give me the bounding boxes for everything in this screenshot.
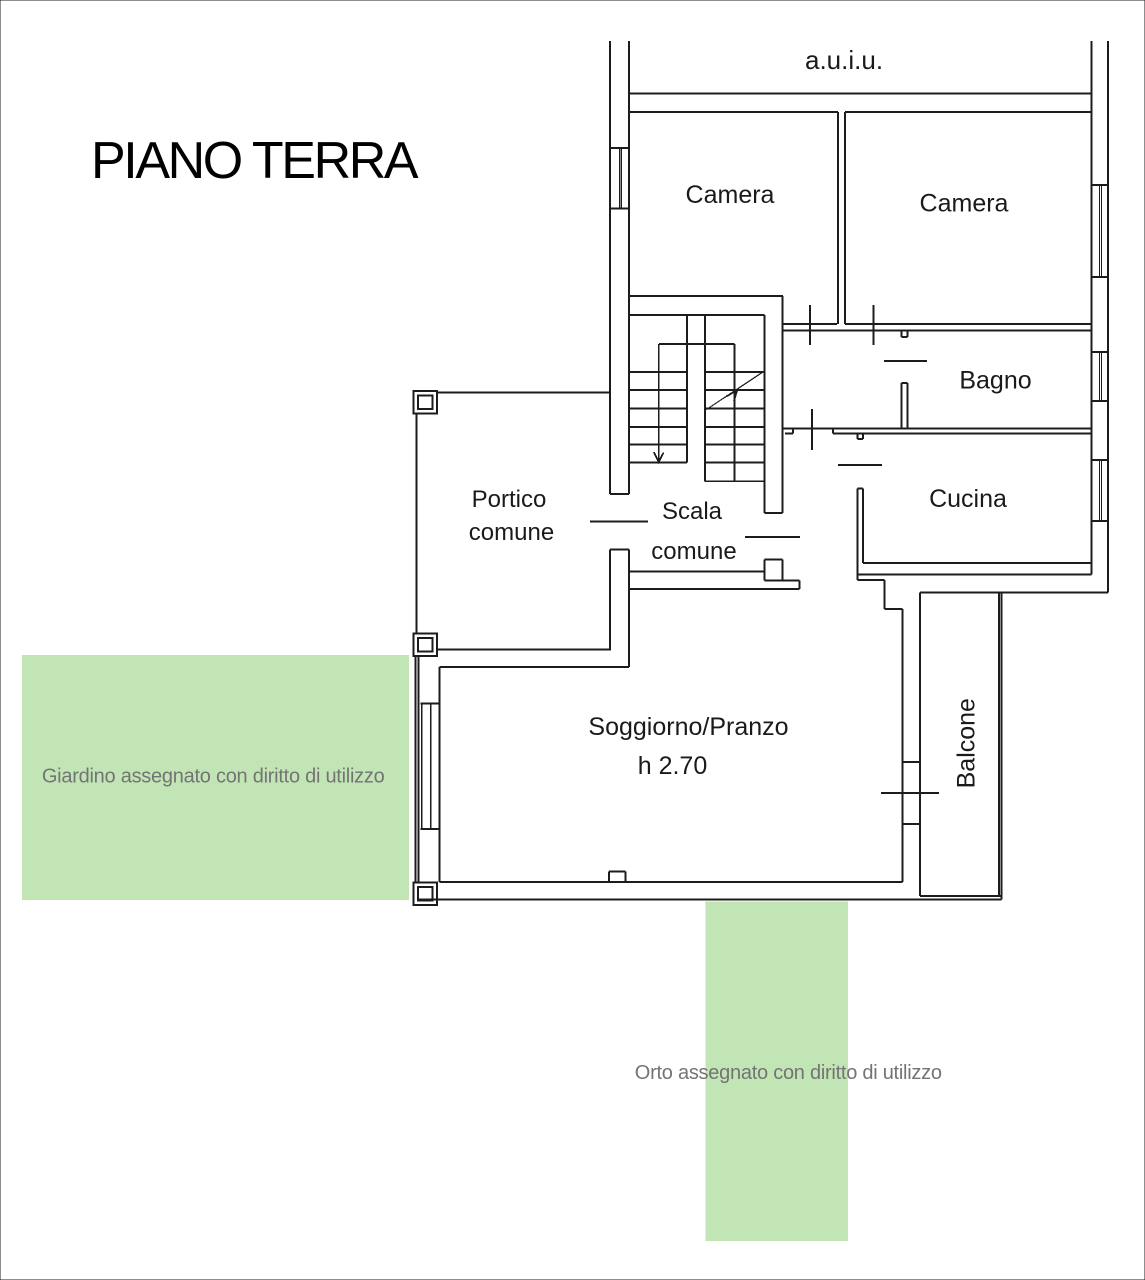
svg-text:PIANO TERRA: PIANO TERRA (91, 132, 419, 190)
svg-text:comune: comune (469, 519, 554, 546)
svg-text:Giardino assegnato con diritto: Giardino assegnato con diritto di utiliz… (42, 766, 385, 788)
svg-text:Camera: Camera (686, 181, 775, 209)
svg-text:comune: comune (651, 538, 736, 565)
svg-text:Camera: Camera (920, 190, 1009, 218)
svg-text:Balcone: Balcone (952, 698, 980, 788)
svg-text:Portico: Portico (472, 486, 547, 513)
svg-text:Cucina: Cucina (929, 485, 1007, 513)
svg-text:Orto assegnato con diritto di: Orto assegnato con diritto di utilizzo (635, 1062, 942, 1084)
svg-text:Bagno: Bagno (959, 367, 1031, 395)
svg-text:a.u.i.u.: a.u.i.u. (805, 45, 883, 75)
svg-text:Scala: Scala (662, 498, 723, 525)
svg-text:Soggiorno/Pranzo: Soggiorno/Pranzo (588, 713, 788, 741)
svg-text:h 2.70: h 2.70 (638, 752, 708, 780)
